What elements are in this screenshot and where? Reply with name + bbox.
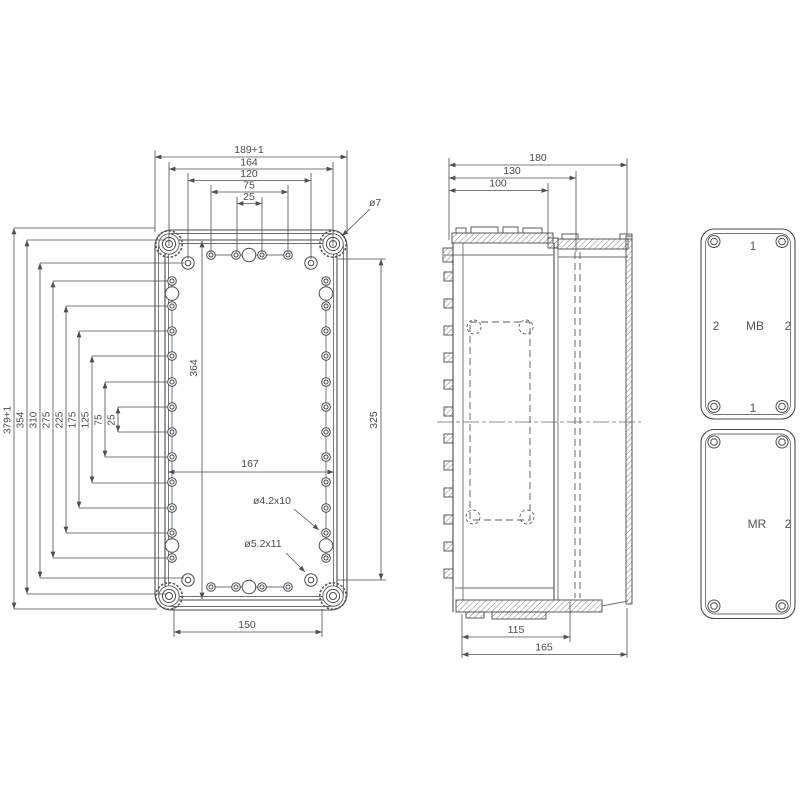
- page-background: [0, 0, 800, 800]
- dim-depth-130: 130: [503, 165, 521, 177]
- dim-outer-height: 379+1: [3, 406, 14, 435]
- dim-bottom-width: 150: [238, 619, 256, 631]
- dim-depth-100: 100: [489, 178, 507, 190]
- dim-outer-width: 189+1: [234, 144, 264, 156]
- corner-hole-callout: ø7: [369, 197, 381, 209]
- dim-width-120: 120: [240, 168, 258, 180]
- dim-depth-165: 165: [535, 642, 553, 654]
- dim-depth-115: 115: [508, 624, 525, 636]
- dim-width-164: 164: [240, 157, 258, 169]
- dim-depth-180: 180: [529, 152, 547, 164]
- enclosure-drawing-canvas: 189+1 164 120 75 25 379+1: [0, 0, 800, 800]
- dim-height-75: 75: [94, 414, 105, 426]
- side-right-wall: [626, 236, 632, 604]
- mb-panel-left-label: 2: [713, 319, 720, 333]
- mb-panel-center-label: MB: [746, 319, 764, 333]
- dim-inner-width: 167: [241, 458, 259, 470]
- small-hole-callout: ø4.2x10: [253, 495, 291, 507]
- mb-panel-bottom-label: 1: [750, 401, 757, 415]
- dim-height-354: 354: [16, 411, 27, 428]
- dim-inner-height: 364: [188, 359, 200, 377]
- mr-panel-center-label: MR: [748, 517, 767, 531]
- mr-panel-right-label: 2: [785, 517, 792, 531]
- dim-width-25: 25: [243, 191, 255, 203]
- large-hole-callout: ø5.2x11: [244, 538, 281, 550]
- dim-right-height: 325: [368, 411, 380, 429]
- dim-height-125: 125: [81, 411, 92, 428]
- technical-drawing-page: 189+1 164 120 75 25 379+1: [0, 0, 800, 800]
- dim-height-310: 310: [29, 411, 40, 428]
- dim-height-25: 25: [107, 414, 118, 426]
- mb-panel-right-label: 2: [785, 319, 792, 333]
- dim-width-75: 75: [243, 180, 255, 192]
- dim-height-275: 275: [42, 411, 53, 428]
- mb-panel-top-label: 1: [750, 239, 757, 253]
- dim-height-175: 175: [68, 411, 79, 428]
- dim-height-225: 225: [55, 411, 66, 428]
